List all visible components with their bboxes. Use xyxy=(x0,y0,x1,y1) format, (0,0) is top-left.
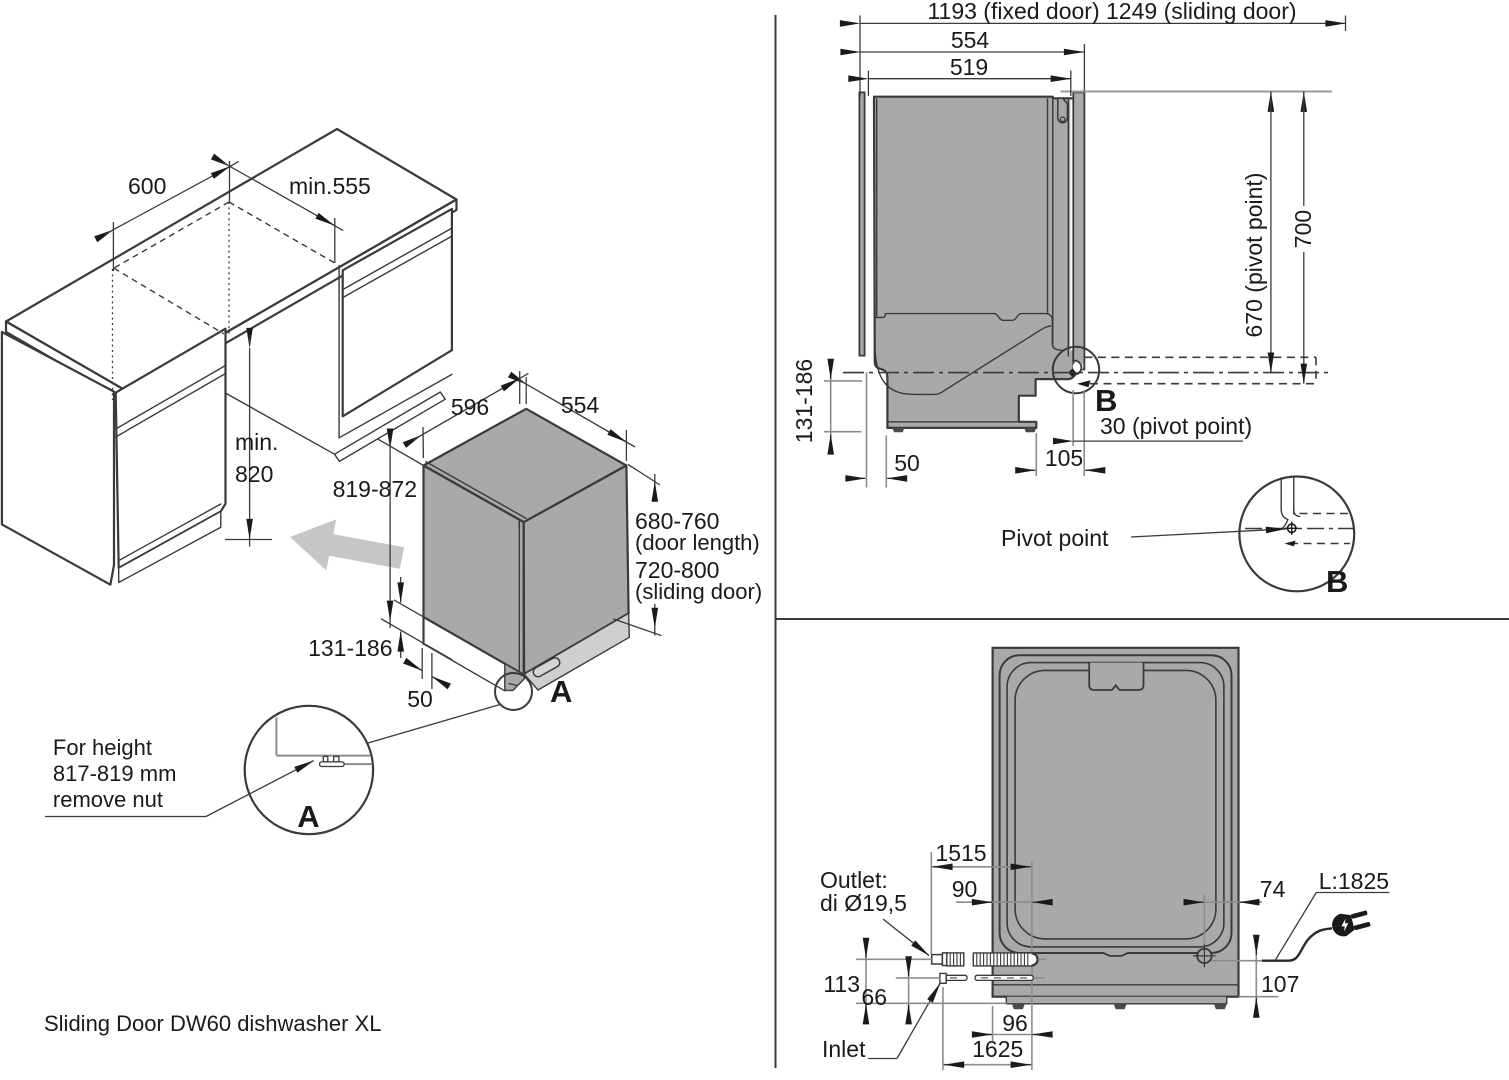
svg-text:554: 554 xyxy=(951,27,990,53)
svg-text:670 (pivot point): 670 (pivot point) xyxy=(1241,173,1267,338)
svg-text:50: 50 xyxy=(894,450,920,476)
svg-text:74: 74 xyxy=(1260,876,1286,902)
svg-text:554: 554 xyxy=(561,392,600,418)
svg-text:L:1825: L:1825 xyxy=(1319,868,1389,894)
svg-text:di Ø19,5: di Ø19,5 xyxy=(820,890,907,916)
svg-text:107: 107 xyxy=(1261,971,1299,997)
svg-text:700: 700 xyxy=(1290,210,1316,248)
svg-text:B: B xyxy=(1326,564,1348,599)
svg-text:600: 600 xyxy=(128,173,166,199)
svg-text:131-186: 131-186 xyxy=(791,359,817,443)
svg-text:min.555: min.555 xyxy=(289,173,371,199)
svg-text:For height: For height xyxy=(53,735,152,760)
svg-text:A: A xyxy=(297,799,319,834)
svg-text:A: A xyxy=(550,674,572,709)
svg-text:1193 (fixed door) 1249 (slidin: 1193 (fixed door) 1249 (sliding door) xyxy=(927,0,1296,24)
svg-text:remove nut: remove nut xyxy=(53,787,163,812)
svg-text:113: 113 xyxy=(823,971,860,997)
svg-text:519: 519 xyxy=(950,54,988,80)
svg-text:596: 596 xyxy=(451,394,489,420)
svg-text:1515: 1515 xyxy=(935,840,986,866)
svg-text:30 (pivot point): 30 (pivot point) xyxy=(1100,413,1252,439)
svg-text:50: 50 xyxy=(407,686,433,712)
svg-text:Sliding Door DW60 dishwasher X: Sliding Door DW60 dishwasher XL xyxy=(44,1011,382,1036)
svg-text:Inlet: Inlet xyxy=(822,1036,866,1062)
svg-text:90: 90 xyxy=(952,876,978,902)
svg-text:min.: min. xyxy=(235,429,278,455)
svg-text:131-186: 131-186 xyxy=(308,635,392,661)
svg-text:(sliding door): (sliding door) xyxy=(635,579,762,604)
svg-text:96: 96 xyxy=(1002,1010,1028,1036)
svg-text:(door length): (door length) xyxy=(635,530,760,555)
svg-text:105: 105 xyxy=(1045,445,1083,471)
svg-text:819-872: 819-872 xyxy=(333,476,417,502)
svg-text:Pivot point: Pivot point xyxy=(1001,525,1109,551)
svg-text:1625: 1625 xyxy=(972,1036,1023,1062)
svg-text:817-819 mm: 817-819 mm xyxy=(53,761,177,786)
svg-text:820: 820 xyxy=(235,461,273,487)
svg-text:66: 66 xyxy=(861,984,887,1010)
